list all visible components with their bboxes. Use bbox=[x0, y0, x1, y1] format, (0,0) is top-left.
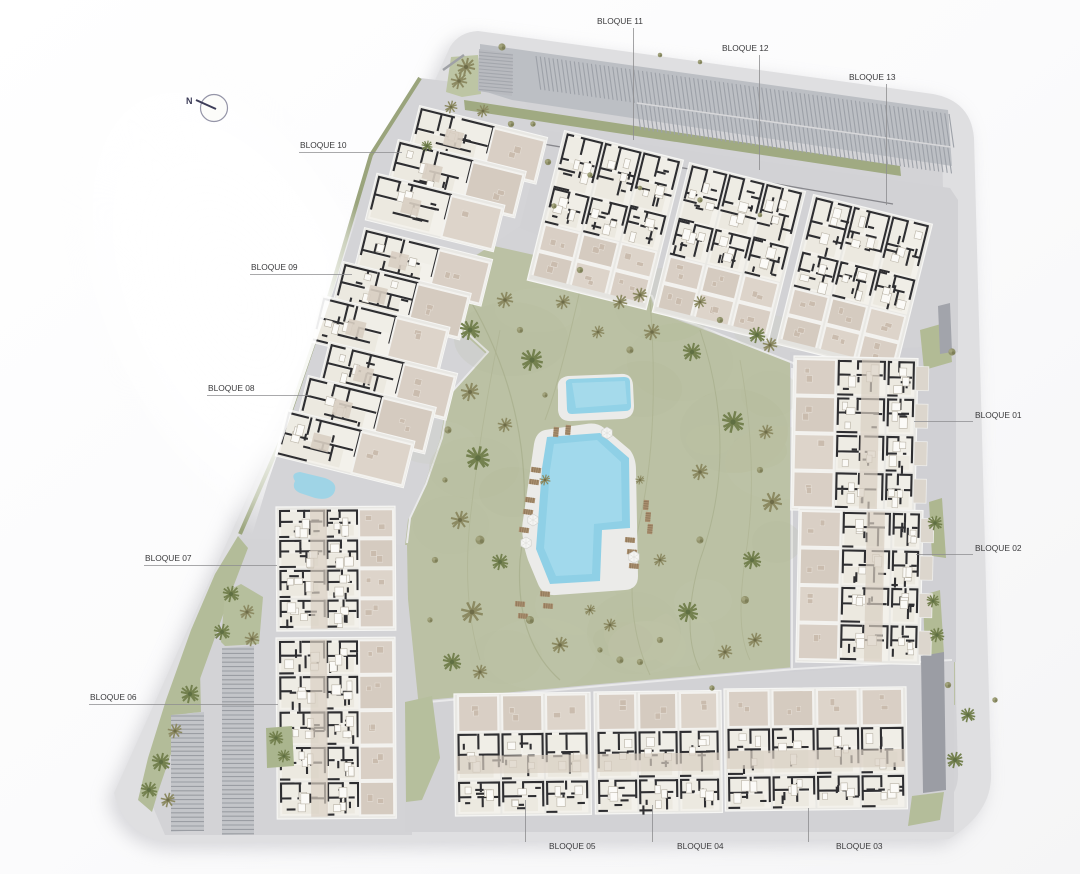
svg-text:BLOQUE 07: BLOQUE 07 bbox=[145, 553, 192, 563]
svg-text:BLOQUE 04: BLOQUE 04 bbox=[677, 841, 724, 851]
svg-text:BLOQUE 02: BLOQUE 02 bbox=[975, 543, 1022, 553]
svg-text:BLOQUE 08: BLOQUE 08 bbox=[208, 383, 255, 393]
svg-text:N: N bbox=[186, 96, 193, 106]
svg-text:BLOQUE 13: BLOQUE 13 bbox=[849, 72, 896, 82]
svg-text:BLOQUE 10: BLOQUE 10 bbox=[300, 140, 347, 150]
svg-text:BLOQUE 09: BLOQUE 09 bbox=[251, 262, 298, 272]
svg-text:BLOQUE 03: BLOQUE 03 bbox=[836, 841, 883, 851]
svg-text:BLOQUE 01: BLOQUE 01 bbox=[975, 410, 1022, 420]
svg-text:BLOQUE 06: BLOQUE 06 bbox=[90, 692, 137, 702]
svg-text:BLOQUE 11: BLOQUE 11 bbox=[597, 16, 643, 26]
svg-text:BLOQUE 12: BLOQUE 12 bbox=[722, 43, 769, 53]
svg-text:BLOQUE 05: BLOQUE 05 bbox=[549, 841, 596, 851]
